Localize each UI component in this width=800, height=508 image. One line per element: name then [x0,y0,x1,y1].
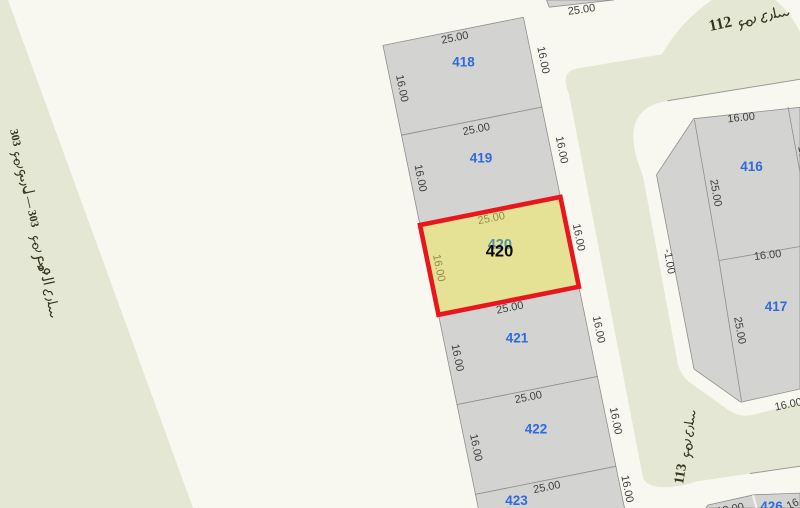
svg-text:419: 419 [470,151,493,166]
svg-text:416: 416 [740,159,763,174]
svg-text:421: 421 [506,331,529,346]
svg-text:418: 418 [452,55,475,70]
svg-text:417: 417 [765,299,788,314]
svg-text:422: 422 [525,422,548,437]
svg-text:113: 113 [672,463,690,485]
svg-text:420: 420 [486,243,514,261]
svg-text:426: 426 [760,499,783,508]
svg-text:423: 423 [505,493,528,508]
